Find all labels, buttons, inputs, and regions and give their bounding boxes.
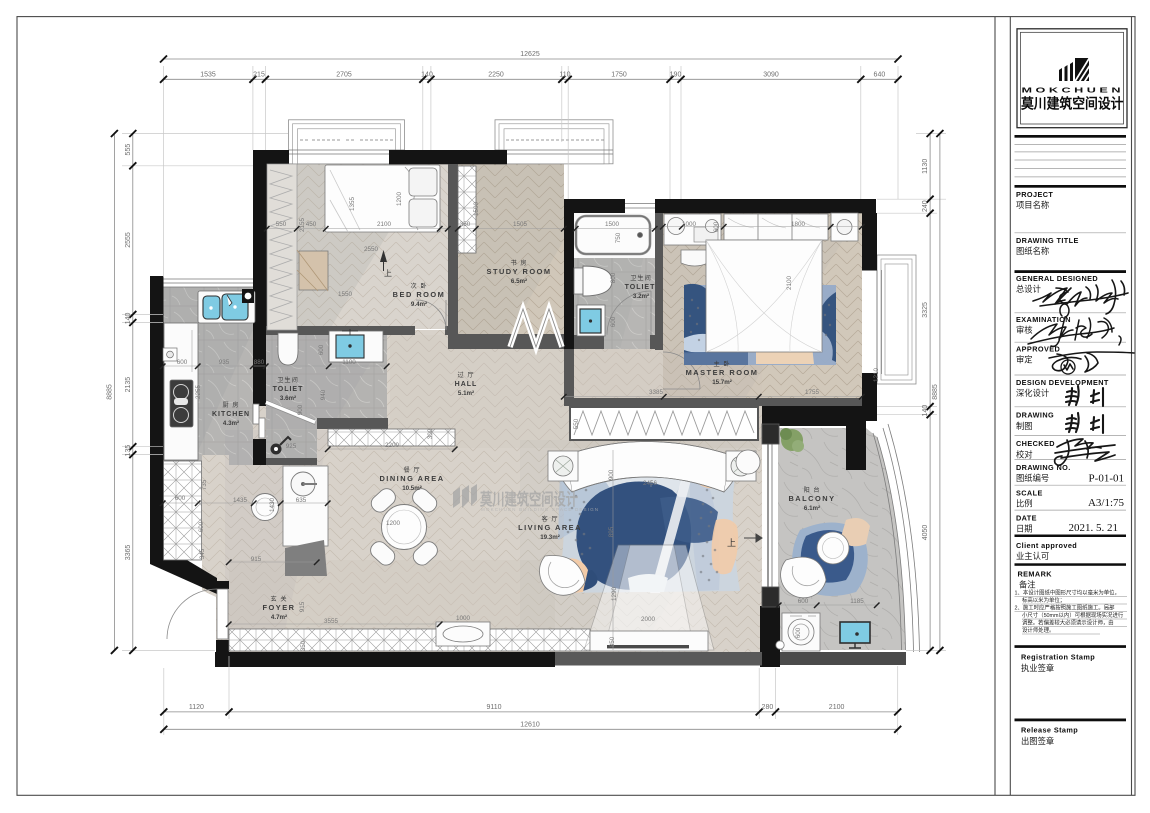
svg-text:DINING AREA: DINING AREA bbox=[379, 474, 444, 483]
svg-text:190: 190 bbox=[670, 71, 682, 78]
svg-text:书 房: 书 房 bbox=[510, 259, 527, 267]
svg-text:925: 925 bbox=[286, 443, 297, 450]
svg-text:1290: 1290 bbox=[611, 587, 618, 602]
svg-text:1550: 1550 bbox=[338, 291, 353, 298]
svg-text:厨 房: 厨 房 bbox=[222, 401, 239, 409]
svg-text:TOLIET: TOLIET bbox=[273, 386, 304, 393]
svg-text:350: 350 bbox=[300, 640, 307, 651]
svg-text:280: 280 bbox=[762, 704, 774, 711]
svg-text:主 卧: 主 卧 bbox=[713, 360, 730, 368]
svg-text:550: 550 bbox=[276, 221, 287, 228]
svg-text:比例: 比例 bbox=[1016, 499, 1033, 509]
svg-text:TOLIET: TOLIET bbox=[625, 284, 656, 291]
svg-text:3.2m²: 3.2m² bbox=[633, 293, 649, 300]
svg-text:日期: 日期 bbox=[1016, 524, 1033, 534]
svg-text:1535: 1535 bbox=[200, 71, 216, 78]
svg-text:GENERAL DESIGNED: GENERAL DESIGNED bbox=[1016, 274, 1098, 283]
svg-text:8885: 8885 bbox=[106, 384, 113, 400]
svg-text:4.7m²: 4.7m² bbox=[271, 614, 287, 621]
svg-text:调整。若偏差较大必须请示设计师，由: 调整。若偏差较大必须请示设计师，由 bbox=[1022, 619, 1114, 627]
svg-text:600: 600 bbox=[198, 521, 205, 532]
svg-text:设计师处理。: 设计师处理。 bbox=[1022, 626, 1054, 634]
svg-text:735: 735 bbox=[201, 479, 208, 490]
svg-text:8885: 8885 bbox=[932, 384, 939, 400]
svg-text:550: 550 bbox=[573, 418, 580, 429]
svg-text:卫生间: 卫生间 bbox=[277, 376, 299, 384]
svg-text:1435: 1435 bbox=[233, 497, 248, 504]
svg-text:3.6m²: 3.6m² bbox=[280, 395, 296, 402]
svg-text:DATE: DATE bbox=[1016, 514, 1037, 523]
svg-text:3365: 3365 bbox=[125, 545, 132, 561]
svg-text:1130: 1130 bbox=[922, 159, 929, 174]
svg-text:莫川建筑空间设计: 莫川建筑空间设计 bbox=[480, 489, 578, 509]
svg-text:1120: 1120 bbox=[189, 704, 204, 711]
svg-text:940: 940 bbox=[320, 389, 327, 400]
svg-text:2、施工时应严格按照施工图纸施工。局部: 2、施工时应严格按照施工图纸施工。局部 bbox=[1015, 604, 1116, 612]
svg-text:1、本设计图纸中图形尺寸均以毫米为单位，: 1、本设计图纸中图形尺寸均以毫米为单位， bbox=[1015, 589, 1120, 597]
svg-text:240: 240 bbox=[922, 200, 929, 212]
svg-text:客 厅: 客 厅 bbox=[541, 515, 558, 523]
svg-text:915: 915 bbox=[299, 601, 306, 612]
svg-text:215: 215 bbox=[253, 71, 265, 78]
svg-text:玄 关: 玄 关 bbox=[270, 595, 287, 603]
svg-text:1000: 1000 bbox=[682, 221, 697, 228]
svg-text:CHECKED: CHECKED bbox=[1016, 439, 1055, 448]
svg-text:2100: 2100 bbox=[829, 704, 845, 711]
svg-text:2100: 2100 bbox=[786, 276, 793, 291]
svg-text:1800: 1800 bbox=[791, 221, 806, 228]
svg-text:2000: 2000 bbox=[641, 616, 656, 623]
svg-text:850: 850 bbox=[609, 636, 616, 647]
svg-text:935: 935 bbox=[219, 359, 230, 366]
svg-text:19.3m²: 19.3m² bbox=[540, 534, 560, 541]
svg-text:业主认可: 业主认可 bbox=[1016, 551, 1049, 561]
svg-text:900: 900 bbox=[297, 404, 304, 415]
svg-text:过 厅: 过 厅 bbox=[457, 371, 474, 379]
svg-text:12625: 12625 bbox=[520, 51, 540, 58]
svg-text:卫生间: 卫生间 bbox=[630, 274, 652, 282]
svg-text:1500: 1500 bbox=[473, 202, 480, 217]
svg-text:MOKCHUEN BUILDING SPACE DESIGN: MOKCHUEN BUILDING SPACE DESIGN bbox=[481, 507, 599, 512]
svg-text:1200: 1200 bbox=[386, 520, 401, 527]
svg-text:BED ROOM: BED ROOM bbox=[393, 290, 446, 299]
svg-text:1000: 1000 bbox=[456, 615, 471, 622]
svg-text:600: 600 bbox=[798, 598, 809, 605]
svg-text:1355: 1355 bbox=[349, 197, 356, 212]
svg-text:2200: 2200 bbox=[385, 442, 400, 449]
svg-text:12610: 12610 bbox=[520, 721, 540, 728]
svg-text:上: 上 bbox=[727, 538, 736, 548]
svg-text:出图签章: 出图签章 bbox=[1021, 736, 1054, 746]
svg-text:次 卧: 次 卧 bbox=[410, 282, 427, 290]
svg-text:HALL: HALL bbox=[455, 381, 478, 388]
svg-text:阳 台: 阳 台 bbox=[803, 486, 820, 494]
svg-text:A3/1:75: A3/1:75 bbox=[1088, 497, 1125, 509]
svg-text:600: 600 bbox=[795, 627, 802, 638]
svg-text:6.5m²: 6.5m² bbox=[511, 278, 527, 285]
svg-text:2100: 2100 bbox=[377, 221, 392, 228]
svg-text:2250: 2250 bbox=[488, 71, 504, 78]
svg-text:DRAWING: DRAWING bbox=[1016, 411, 1054, 420]
svg-text:800: 800 bbox=[610, 272, 617, 283]
svg-text:140: 140 bbox=[421, 71, 433, 78]
svg-text:345: 345 bbox=[199, 548, 206, 559]
svg-text:审核: 审核 bbox=[1016, 325, 1033, 335]
svg-text:1755: 1755 bbox=[805, 389, 820, 396]
svg-text:1100: 1100 bbox=[342, 359, 356, 366]
svg-text:2705: 2705 bbox=[336, 71, 352, 78]
svg-text:4.3m²: 4.3m² bbox=[223, 420, 239, 427]
svg-text:1430: 1430 bbox=[269, 498, 276, 513]
svg-text:小尺寸（50mm以内）可根据现场实况进行: 小尺寸（50mm以内）可根据现场实况进行 bbox=[1022, 611, 1124, 619]
svg-text:10.5m²: 10.5m² bbox=[402, 485, 422, 492]
svg-text:3555: 3555 bbox=[324, 618, 339, 625]
svg-text:图纸名称: 图纸名称 bbox=[1016, 246, 1049, 256]
svg-text:图纸编号: 图纸编号 bbox=[1016, 473, 1049, 483]
svg-text:BALCONY: BALCONY bbox=[788, 494, 835, 503]
svg-text:Registration Stamp: Registration Stamp bbox=[1021, 653, 1095, 662]
svg-text:1500: 1500 bbox=[605, 221, 620, 228]
svg-text:M O K C H U E N: M O K C H U E N bbox=[1022, 88, 1121, 95]
svg-text:635: 635 bbox=[296, 497, 307, 504]
svg-text:6.1m²: 6.1m² bbox=[804, 505, 820, 512]
svg-text:REMARK: REMARK bbox=[1018, 570, 1053, 579]
svg-text:3325: 3325 bbox=[922, 302, 929, 318]
svg-text:PROJECT: PROJECT bbox=[1016, 190, 1053, 199]
svg-text:项目名称: 项目名称 bbox=[1016, 200, 1049, 210]
svg-text:600: 600 bbox=[175, 495, 186, 502]
svg-text:9110: 9110 bbox=[486, 704, 501, 711]
svg-text:600: 600 bbox=[713, 221, 720, 232]
svg-text:640: 640 bbox=[874, 71, 886, 78]
svg-text:Release Stamp: Release Stamp bbox=[1021, 726, 1078, 735]
svg-text:600: 600 bbox=[318, 344, 325, 355]
svg-text:1185: 1185 bbox=[850, 598, 864, 605]
svg-text:2135: 2135 bbox=[125, 377, 132, 393]
svg-text:4050: 4050 bbox=[922, 525, 929, 541]
svg-text:3385: 3385 bbox=[649, 389, 664, 396]
svg-text:SCALE: SCALE bbox=[1016, 489, 1043, 498]
svg-text:915: 915 bbox=[251, 556, 262, 563]
svg-text:880: 880 bbox=[254, 359, 265, 366]
svg-text:2555: 2555 bbox=[125, 232, 132, 248]
svg-text:900: 900 bbox=[608, 469, 615, 480]
svg-text:深化设计: 深化设计 bbox=[1016, 388, 1049, 398]
svg-text:FOYER: FOYER bbox=[263, 603, 296, 612]
svg-text:STUDY ROOM: STUDY ROOM bbox=[487, 267, 552, 276]
svg-text:5.1m²: 5.1m² bbox=[458, 390, 474, 397]
svg-text:750: 750 bbox=[615, 232, 622, 243]
svg-text:餐 厅: 餐 厅 bbox=[403, 466, 420, 474]
svg-text:1210: 1210 bbox=[873, 368, 880, 383]
svg-text:1750: 1750 bbox=[611, 71, 627, 78]
svg-text:校对: 校对 bbox=[1016, 450, 1033, 460]
svg-text:2456: 2456 bbox=[643, 480, 658, 487]
svg-text:KITCHEN: KITCHEN bbox=[212, 411, 250, 418]
svg-text:2021. 5. 21: 2021. 5. 21 bbox=[1069, 522, 1119, 534]
svg-text:上: 上 bbox=[384, 269, 392, 278]
svg-text:895: 895 bbox=[608, 526, 615, 537]
svg-text:P-01-01: P-01-01 bbox=[1089, 473, 1124, 485]
svg-text:1200: 1200 bbox=[396, 192, 403, 207]
svg-text:3090: 3090 bbox=[763, 71, 779, 78]
svg-text:9.4m²: 9.4m² bbox=[411, 301, 427, 308]
svg-text:Client approved: Client approved bbox=[1016, 541, 1077, 550]
svg-text:15.7m²: 15.7m² bbox=[712, 379, 732, 386]
svg-text:110: 110 bbox=[559, 71, 570, 78]
svg-text:2550: 2550 bbox=[364, 246, 379, 253]
svg-text:制图: 制图 bbox=[1016, 421, 1033, 431]
svg-text:LIVING AREA: LIVING AREA bbox=[518, 523, 582, 532]
svg-text:审定: 审定 bbox=[1016, 355, 1033, 365]
svg-text:莫川建筑空间设计: 莫川建筑空间设计 bbox=[1020, 96, 1123, 112]
svg-text:备注: 备注 bbox=[1019, 580, 1036, 590]
svg-text:600: 600 bbox=[177, 359, 188, 366]
svg-text:555: 555 bbox=[125, 144, 132, 156]
svg-text:135: 135 bbox=[125, 445, 132, 457]
svg-text:MASTER ROOM: MASTER ROOM bbox=[686, 368, 759, 377]
svg-text:EXAMINATION: EXAMINATION bbox=[1016, 315, 1071, 324]
svg-text:1505: 1505 bbox=[513, 221, 528, 228]
svg-text:600: 600 bbox=[610, 316, 617, 327]
svg-text:2255: 2255 bbox=[195, 385, 202, 400]
svg-text:300: 300 bbox=[427, 428, 434, 439]
svg-text:DRAWING TITLE: DRAWING TITLE bbox=[1016, 236, 1079, 245]
svg-text:总设计: 总设计 bbox=[1016, 284, 1041, 294]
svg-text:450: 450 bbox=[306, 221, 317, 228]
svg-text:350: 350 bbox=[460, 221, 471, 228]
svg-text:DESIGN DEVELOPMENT: DESIGN DEVELOPMENT bbox=[1016, 378, 1109, 387]
svg-text:标高以米为单位；: 标高以米为单位； bbox=[1022, 596, 1065, 604]
svg-text:140: 140 bbox=[922, 405, 929, 417]
svg-text:执业签章: 执业签章 bbox=[1021, 663, 1054, 673]
svg-text:140: 140 bbox=[125, 312, 132, 324]
